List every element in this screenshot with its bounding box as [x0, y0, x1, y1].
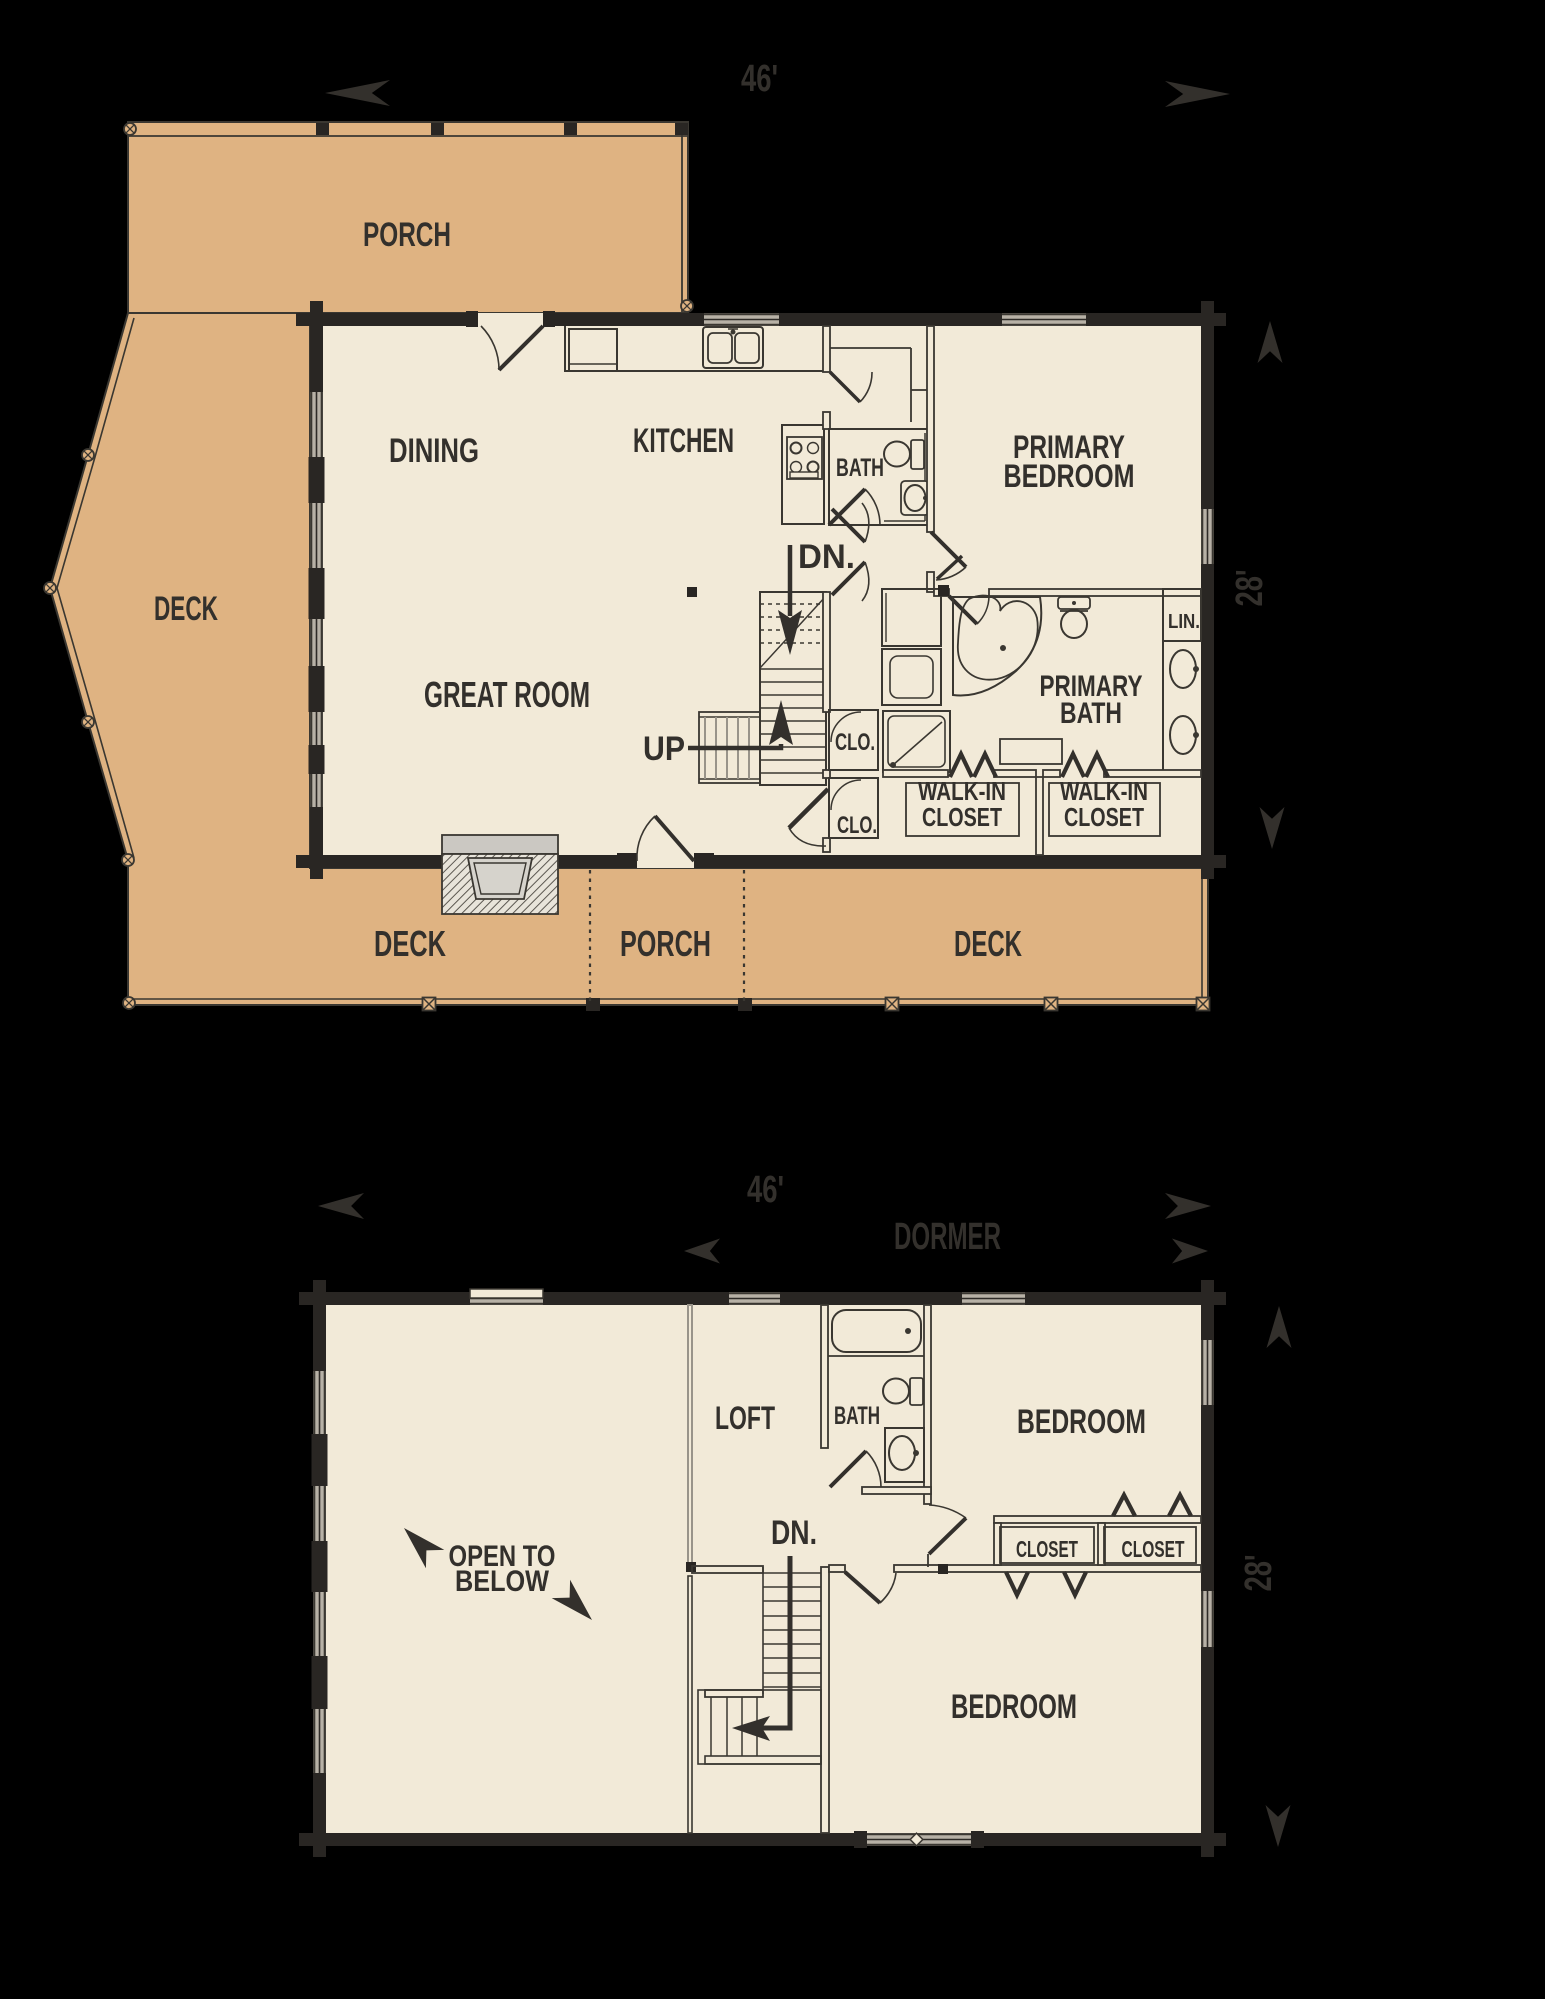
svg-text:BATH: BATH [1060, 697, 1122, 730]
svg-text:LOFT: LOFT [715, 1400, 775, 1436]
svg-text:CLOSET: CLOSET [922, 802, 1002, 832]
svg-text:BATH: BATH [834, 1402, 880, 1430]
svg-text:CLOSET: CLOSET [1064, 802, 1144, 832]
svg-text:UP: UP [643, 730, 685, 768]
svg-text:PORCH: PORCH [363, 216, 451, 254]
svg-text:DECK: DECK [954, 923, 1022, 964]
svg-text:28': 28' [1229, 570, 1271, 607]
svg-text:28': 28' [1238, 1555, 1280, 1592]
svg-text:KITCHEN: KITCHEN [633, 422, 734, 460]
svg-text:BEDROOM: BEDROOM [1004, 458, 1135, 494]
svg-text:DECK: DECK [374, 923, 446, 964]
svg-text:LIN.: LIN. [1168, 611, 1200, 633]
svg-text:DECK: DECK [154, 590, 218, 628]
svg-text:CLO.: CLO. [835, 729, 875, 756]
svg-text:46': 46' [747, 1169, 784, 1211]
svg-text:BATH: BATH [836, 454, 884, 482]
svg-text:CLO.: CLO. [837, 812, 877, 839]
svg-text:CLOSET: CLOSET [1122, 1536, 1185, 1562]
svg-text:46': 46' [741, 58, 778, 100]
svg-text:DN.: DN. [798, 538, 855, 576]
svg-text:DORMER: DORMER [894, 1216, 1001, 1258]
svg-text:BELOW: BELOW [455, 1565, 550, 1598]
svg-text:BEDROOM: BEDROOM [951, 1688, 1077, 1726]
svg-text:PORCH: PORCH [620, 923, 711, 964]
svg-text:DINING: DINING [389, 432, 479, 470]
svg-text:DN.: DN. [771, 1514, 817, 1552]
svg-text:GREAT ROOM: GREAT ROOM [424, 674, 590, 715]
svg-text:BEDROOM: BEDROOM [1017, 1403, 1146, 1441]
svg-text:CLOSET: CLOSET [1016, 1536, 1078, 1562]
